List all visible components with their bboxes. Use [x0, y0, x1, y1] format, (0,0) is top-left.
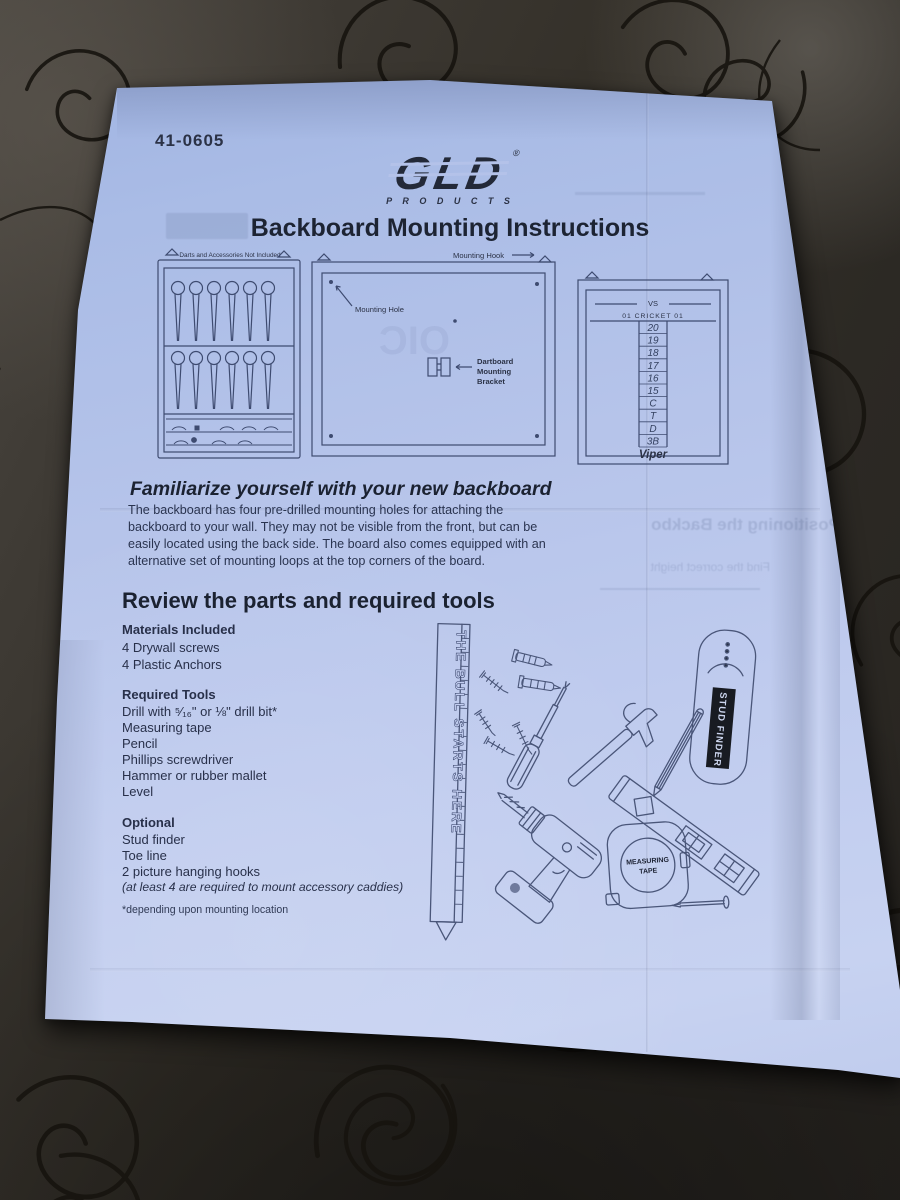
tip-holder-scallops	[166, 419, 292, 445]
stud-finder-label: STUD FINDER	[711, 692, 728, 768]
dart-caddy-diagram: Darts and Accessories Not Included	[158, 249, 300, 458]
svg-text:19: 19	[647, 336, 659, 347]
svg-text:C: C	[649, 399, 657, 410]
familiarize-paragraph: The backboard has four pre-drilled mount…	[128, 502, 546, 570]
backboard-diagram: OIC Mounting Hook Mounting Hole Dartboar…	[312, 251, 555, 456]
scoreboard-vs: VS	[648, 299, 658, 308]
svg-text:16: 16	[647, 373, 659, 384]
optional-item: 2 picture hanging hooks	[122, 864, 260, 879]
caddy-hooks	[166, 249, 290, 257]
measuring-tape: MEASURING TAPE	[601, 820, 693, 910]
svg-text:17: 17	[647, 361, 659, 372]
part-number: 41-0605	[155, 131, 224, 151]
tool-item: Hammer or rubber mallet	[122, 768, 267, 783]
bracket-label-2: Mounting	[477, 367, 512, 376]
scoreboard-numbers: 20 19 18 17 16 15 C T D 3B	[646, 323, 659, 447]
optional-note: (at least 4 are required to mount access…	[122, 880, 403, 894]
tool-item: Phillips screwdriver	[122, 752, 233, 767]
ghost-line: Find the correct height	[600, 560, 770, 574]
bracket-label-1: Dartboard	[477, 357, 514, 366]
toe-line-ruler: THE BULL STARTS HERE	[430, 624, 470, 941]
mounting-hook-label: Mounting Hook	[453, 251, 504, 260]
svg-text:15: 15	[647, 386, 659, 397]
backboard-hooks	[318, 254, 551, 262]
darts-illustration	[164, 282, 294, 446]
optional-item: Stud finder	[122, 832, 185, 847]
optional-title: Optional	[122, 815, 175, 830]
caddy-label: Darts and Accessories Not Included	[179, 252, 281, 259]
ghost-watermark: OIC	[379, 319, 450, 363]
familiarize-heading: Familiarize yourself with your new backb…	[130, 478, 552, 501]
gld-logo-sub: P R O D U C T S	[340, 196, 560, 206]
level	[608, 775, 760, 896]
page-title: Backboard Mounting Instructions	[0, 214, 900, 243]
optional-item: Toe line	[122, 848, 167, 863]
paragraph-line: alternative set of mounting loops at the…	[128, 553, 546, 570]
review-heading: Review the parts and required tools	[122, 588, 495, 614]
nail	[672, 896, 729, 911]
paragraph-line: backboard to your wall. They may not be …	[128, 519, 546, 536]
gld-logo: GLD ® P R O D U C T S	[340, 146, 560, 206]
screws-and-anchors	[475, 649, 562, 759]
paragraph-line: easily located using the back side. The …	[128, 536, 546, 553]
instruction-sheet-paper: Positioning the Backbo Find the correct …	[0, 0, 900, 1200]
mounting-hole-arrow	[336, 286, 352, 306]
scoreboard-header: 01 CRICKET 01	[622, 313, 684, 320]
paragraph-line: The backboard has four pre-drilled mount…	[128, 502, 546, 519]
tool-item: Level	[122, 784, 153, 799]
bracket-icon	[428, 358, 450, 376]
mounting-hole-label: Mounting Hole	[355, 305, 404, 314]
tools-illustration: THE BULL STARTS HERE	[420, 616, 768, 946]
viper-logo: Viper	[639, 449, 668, 461]
plastic-anchor	[518, 676, 561, 694]
photo-scene: Positioning the Backbo Find the correct …	[0, 0, 900, 1200]
bracket-arrow	[456, 365, 472, 370]
svg-text:T: T	[650, 411, 657, 422]
tool-item: Pencil	[122, 736, 157, 751]
ghost-heading: Positioning the Backbo	[590, 515, 840, 535]
svg-text:18: 18	[647, 348, 659, 359]
pencil	[651, 708, 705, 798]
cordless-drill	[449, 780, 606, 932]
tool-item: Measuring tape	[122, 720, 212, 735]
tape-label-line1: MEASURING	[626, 857, 670, 867]
quilt-stitch-pattern	[0, 0, 900, 1200]
backboard-diagrams: Darts and Accessories Not Included	[150, 246, 742, 472]
bracket-label-3: Bracket	[477, 377, 505, 386]
required-tools-title: Required Tools	[122, 687, 216, 702]
svg-text:20: 20	[646, 323, 659, 334]
hammer	[556, 695, 668, 801]
materials-title: Materials Included	[122, 622, 235, 637]
stud-finder: STUD FINDER	[688, 628, 758, 786]
tool-item: Drill with ⁵⁄₁₆" or ⅛" drill bit*	[122, 704, 277, 719]
gld-logo-text: GLD	[391, 147, 509, 199]
ghost-block	[166, 213, 248, 239]
scoreboard-diagram: VS 01 CRICKET 01 20 19 18 17 16	[578, 272, 728, 464]
materials-item: 4 Drywall screws	[122, 640, 220, 655]
mounting-hook-arrow	[512, 253, 534, 258]
tape-label-line2: TAPE	[639, 868, 658, 876]
phillips-screwdriver	[505, 679, 575, 792]
ruler-text: THE BULL STARTS HERE	[448, 630, 468, 835]
svg-text:3B: 3B	[647, 436, 660, 447]
registered-mark: ®	[513, 148, 521, 158]
scoreboard-hooks	[586, 272, 713, 280]
materials-item: 4 Plastic Anchors	[122, 657, 222, 672]
footnote: *depending upon mounting location	[122, 904, 288, 916]
svg-text:D: D	[649, 424, 656, 435]
plastic-anchor	[512, 649, 554, 670]
